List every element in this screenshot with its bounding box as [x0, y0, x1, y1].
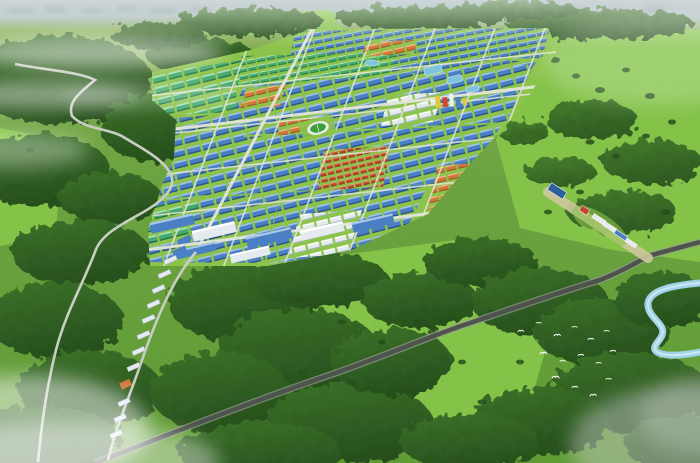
fog-cloud [60, 85, 240, 105]
aerial-rendering: Aerial bird's-eye masterplan rendering o… [0, 0, 700, 463]
